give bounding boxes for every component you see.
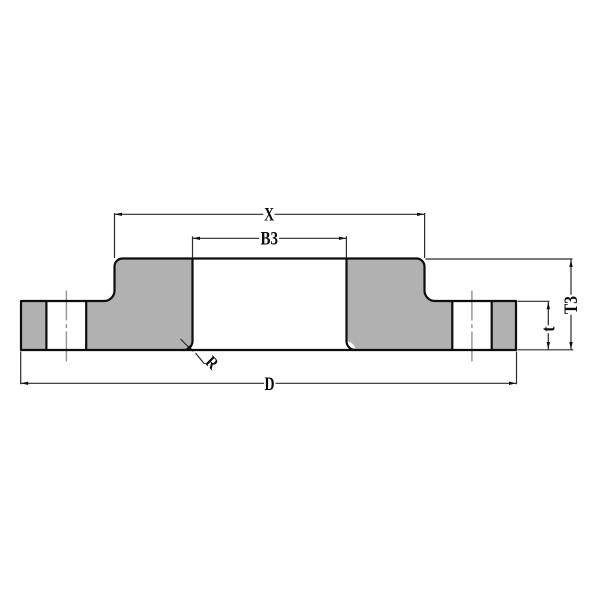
svg-text:B3: B3: [260, 228, 278, 249]
svg-text:X: X: [264, 203, 274, 225]
svg-text:t: t: [538, 326, 559, 331]
svg-text:T3: T3: [560, 296, 581, 314]
svg-text:D: D: [264, 373, 274, 395]
